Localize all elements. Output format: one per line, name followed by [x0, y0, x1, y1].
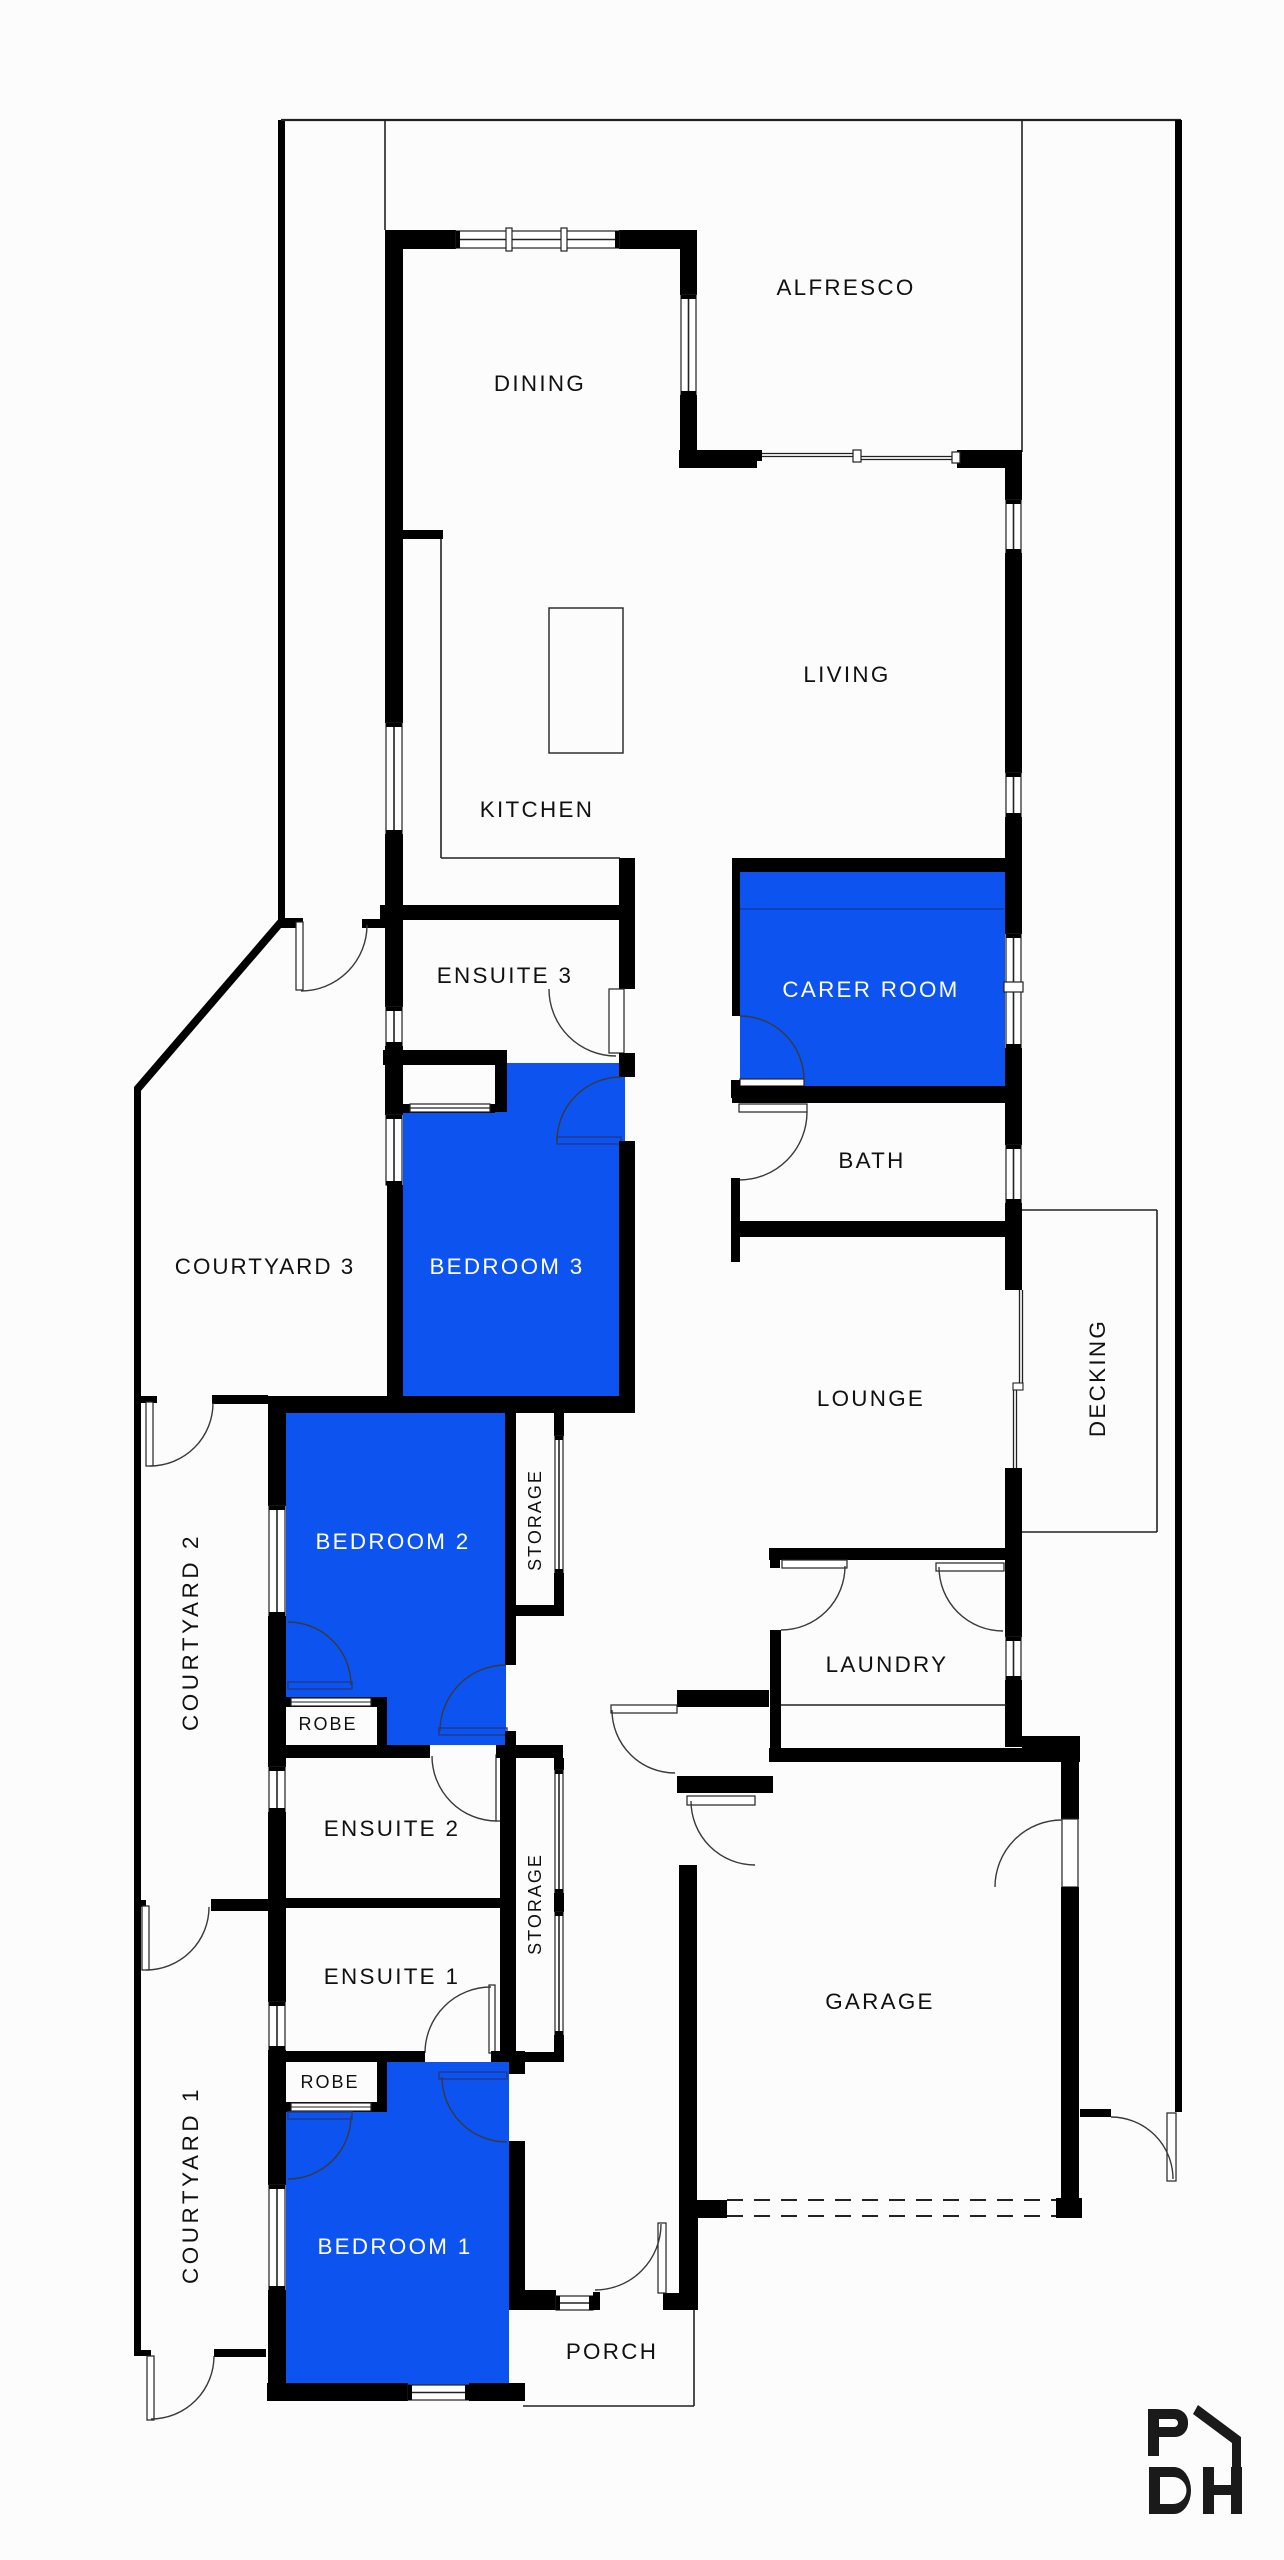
svg-text:ROBE: ROBE — [300, 2072, 359, 2092]
svg-text:PORCH: PORCH — [566, 2339, 658, 2364]
svg-text:KITCHEN: KITCHEN — [480, 797, 594, 822]
svg-text:LOUNGE: LOUNGE — [817, 1386, 925, 1411]
svg-text:LAUNDRY: LAUNDRY — [826, 1652, 949, 1677]
svg-text:LIVING: LIVING — [803, 662, 890, 687]
svg-text:ENSUITE 3: ENSUITE 3 — [437, 963, 573, 988]
svg-text:ALFRESCO: ALFRESCO — [776, 275, 915, 300]
svg-text:BEDROOM 2: BEDROOM 2 — [315, 1529, 470, 1554]
svg-text:COURTYARD 1: COURTYARD 1 — [178, 2086, 203, 2284]
svg-text:COURTYARD 2: COURTYARD 2 — [178, 1533, 203, 1731]
svg-text:ENSUITE 2: ENSUITE 2 — [324, 1816, 460, 1841]
svg-text:COURTYARD 3: COURTYARD 3 — [175, 1254, 355, 1279]
svg-text:CARER ROOM: CARER ROOM — [782, 977, 959, 1002]
svg-text:ENSUITE 1: ENSUITE 1 — [324, 1964, 460, 1989]
svg-text:ROBE: ROBE — [298, 1714, 357, 1734]
svg-text:STORAGE: STORAGE — [525, 1853, 545, 1955]
svg-text:BATH: BATH — [838, 1148, 905, 1173]
svg-text:DINING: DINING — [494, 371, 586, 396]
svg-text:DECKING: DECKING — [1085, 1319, 1110, 1437]
svg-text:STORAGE: STORAGE — [525, 1469, 545, 1571]
svg-text:BEDROOM 3: BEDROOM 3 — [429, 1254, 584, 1279]
svg-text:BEDROOM 1: BEDROOM 1 — [317, 2234, 472, 2259]
svg-text:GARAGE: GARAGE — [825, 1989, 935, 2014]
